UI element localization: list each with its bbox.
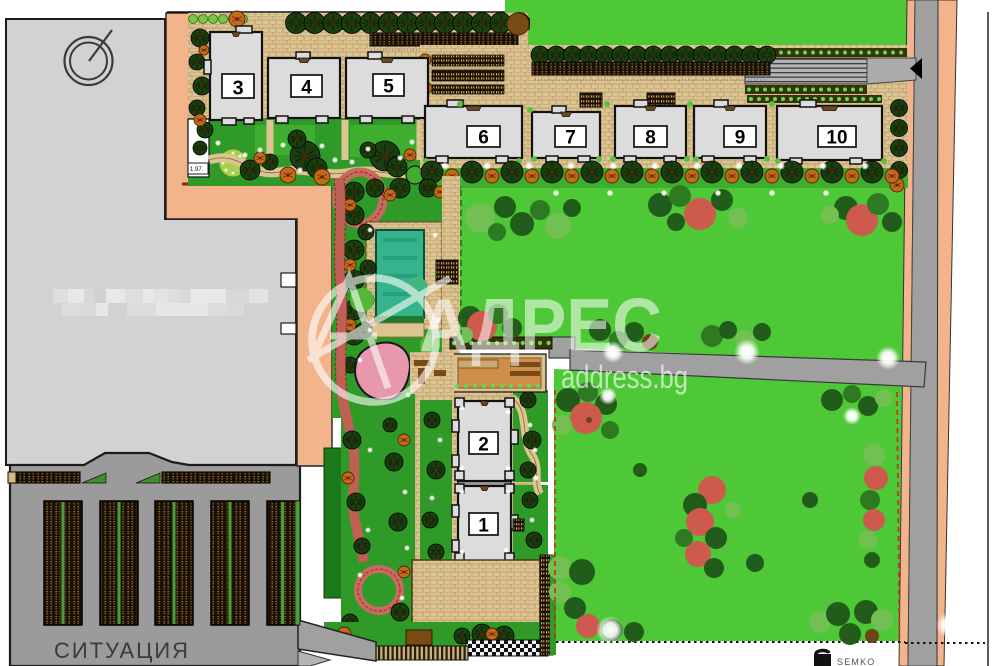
svg-text:SEMKO: SEMKO xyxy=(837,657,876,666)
svg-text:8: 8 xyxy=(645,128,656,149)
svg-text:1.97.: 1.97. xyxy=(190,167,204,173)
svg-text:4: 4 xyxy=(301,78,312,99)
svg-text:АДРЕС: АДРЕС xyxy=(419,283,662,367)
svg-text:2: 2 xyxy=(478,435,489,456)
svg-text:5: 5 xyxy=(383,77,394,98)
svg-text:1: 1 xyxy=(478,516,489,537)
svg-text:9: 9 xyxy=(735,128,746,149)
svg-text:10: 10 xyxy=(826,128,847,149)
svg-text:СИТУАЦИЯ: СИТУАЦИЯ xyxy=(54,638,190,663)
svg-text:address.bg: address.bg xyxy=(561,359,688,395)
svg-text:6: 6 xyxy=(478,128,489,149)
svg-text:7: 7 xyxy=(565,128,576,149)
svg-text:3: 3 xyxy=(232,78,243,100)
